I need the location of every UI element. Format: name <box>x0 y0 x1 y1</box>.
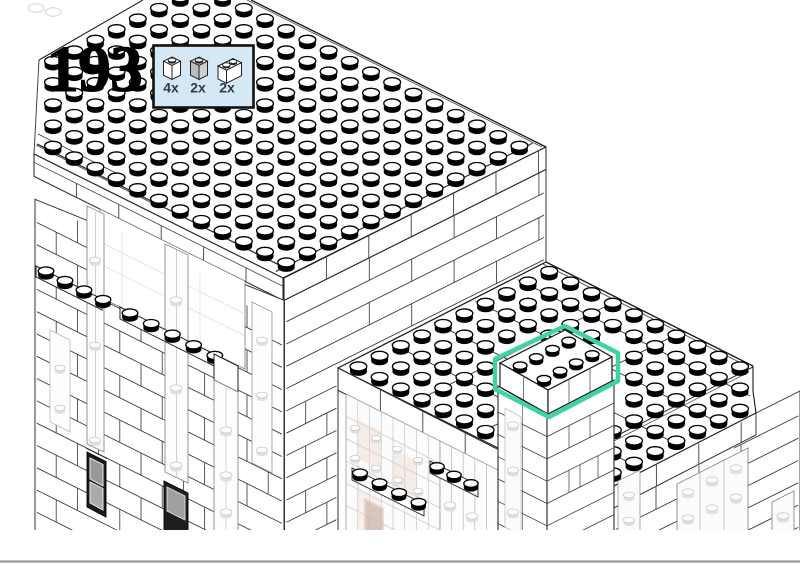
svg-text:193: 193 <box>46 33 142 106</box>
svg-text:2x: 2x <box>190 80 206 96</box>
svg-text:4x: 4x <box>163 80 179 96</box>
svg-text:2x: 2x <box>219 80 235 96</box>
